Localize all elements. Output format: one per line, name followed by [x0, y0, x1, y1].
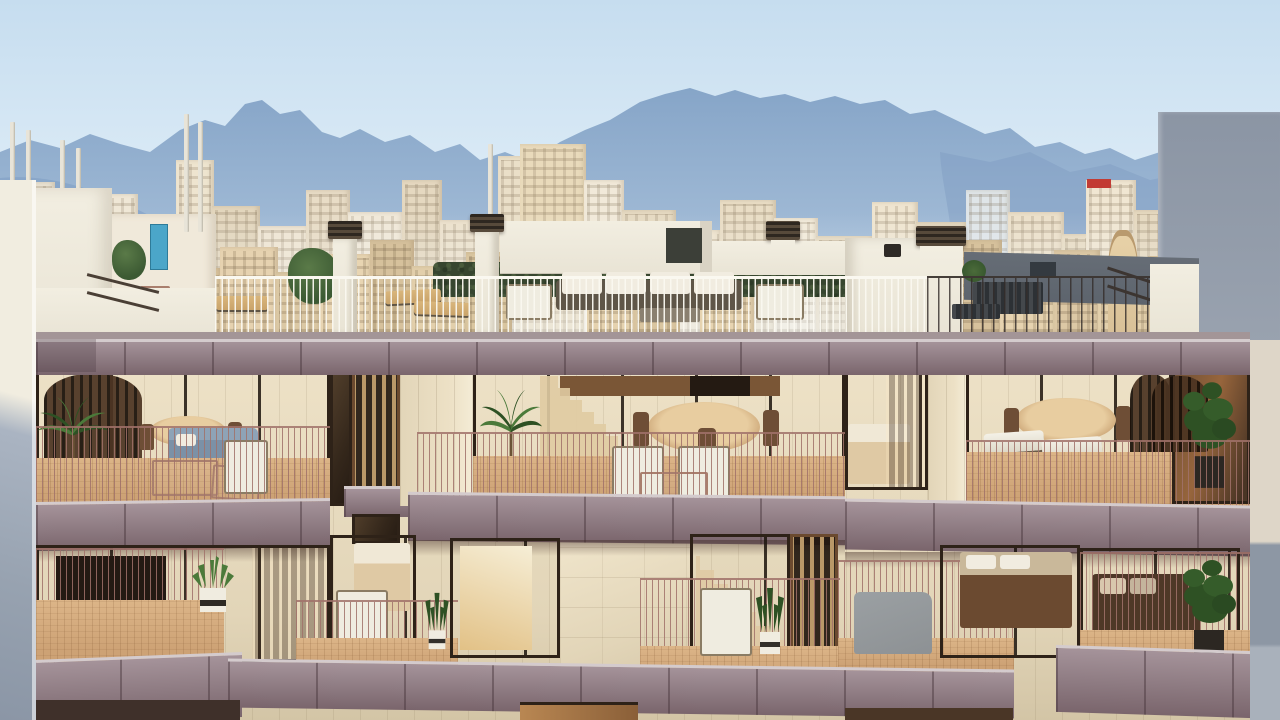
snake-plant-icon	[752, 580, 788, 655]
apartment-building	[0, 0, 1280, 720]
sunlit-wall	[460, 546, 532, 650]
balcony-slab	[36, 498, 330, 551]
window-bedroom-right	[940, 545, 1080, 658]
window-bedroom-upper	[845, 372, 928, 490]
monstera-icon	[1176, 556, 1240, 662]
balcony-armchair	[700, 588, 752, 656]
snake-plant-pot	[752, 580, 788, 655]
succulent-icon	[186, 544, 240, 616]
bed-pillow	[1000, 555, 1030, 569]
neighbor-building-right-lower	[1250, 340, 1280, 720]
dining-chair	[1116, 406, 1131, 440]
juliet-slab	[344, 486, 408, 517]
monstera-planter	[1176, 556, 1240, 662]
succulent-pot	[186, 544, 240, 616]
neighbor-building-left	[0, 180, 36, 720]
balcony-slab	[1056, 645, 1252, 718]
snake-plant-icon	[422, 586, 452, 650]
window-stair-hall	[450, 538, 560, 658]
plant-silhouette	[422, 586, 452, 650]
lower-floor-window-top	[845, 708, 1013, 720]
roof-fascia-band	[36, 339, 1250, 375]
curtain	[886, 375, 925, 487]
gray-recliner	[854, 592, 932, 654]
balcony-railing	[36, 426, 330, 510]
fascia-shade-left	[36, 339, 96, 372]
wood-slat-screen	[352, 372, 400, 492]
stone-pier	[928, 372, 966, 506]
lower-floor-window-top	[520, 702, 638, 720]
kitchen-dark-unit	[690, 376, 750, 396]
bed-pillow	[966, 555, 996, 569]
architectural-render-image: Sunset architectural rendering of a mode…	[0, 0, 1280, 720]
under-balcony-shadow	[36, 700, 240, 720]
